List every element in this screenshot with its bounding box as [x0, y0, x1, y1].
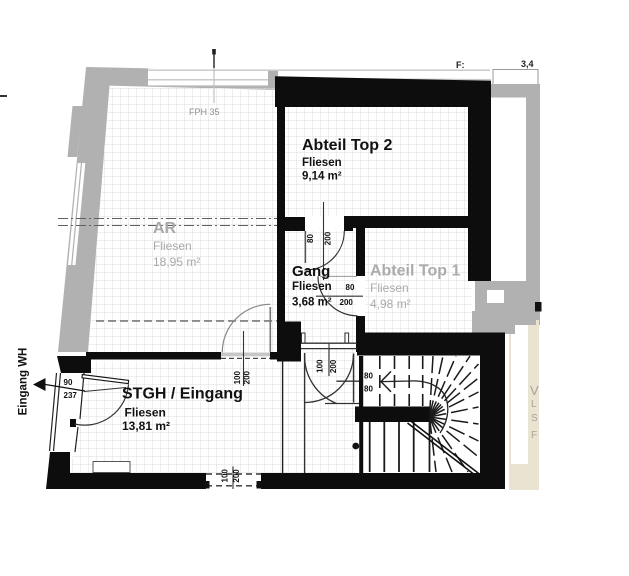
svg-text:18,95 m²: 18,95 m²	[153, 255, 200, 269]
svg-text:STGH / Eingang: STGH / Eingang	[122, 386, 243, 403]
svg-text:200: 200	[340, 298, 354, 307]
svg-text:Fliesen: Fliesen	[292, 281, 332, 293]
svg-text:3,68 m²: 3,68 m²	[292, 297, 332, 309]
svg-text:80: 80	[346, 283, 355, 292]
svg-text:Eingang WH: Eingang WH	[18, 348, 30, 416]
svg-text:Fliesen: Fliesen	[370, 281, 409, 295]
svg-text:200: 200	[329, 359, 338, 373]
svg-text:Fliesen: Fliesen	[302, 157, 342, 169]
svg-text:13,81 m²: 13,81 m²	[122, 419, 170, 433]
svg-text:237: 237	[64, 391, 78, 400]
svg-text:100: 100	[221, 469, 230, 483]
svg-text:V: V	[530, 383, 539, 398]
svg-text:Gang: Gang	[292, 263, 330, 280]
svg-text:F:: F:	[456, 60, 465, 70]
svg-text:Abteil Top 2: Abteil Top 2	[302, 137, 392, 154]
svg-text:Fliesen: Fliesen	[153, 239, 192, 253]
svg-text:L: L	[531, 399, 537, 410]
svg-text:AR: AR	[153, 220, 177, 237]
svg-text:9,14 m²: 9,14 m²	[302, 171, 342, 183]
svg-text:S: S	[531, 413, 538, 424]
svg-text:200: 200	[232, 469, 241, 483]
svg-text:FPH 35: FPH 35	[189, 107, 220, 117]
svg-text:4,98 m²: 4,98 m²	[370, 297, 411, 311]
svg-text:F: F	[531, 430, 537, 441]
svg-text:3,4: 3,4	[521, 59, 534, 69]
svg-text:Abteil Top 1: Abteil Top 1	[370, 263, 460, 280]
svg-text:80: 80	[364, 372, 373, 381]
svg-text:80: 80	[306, 234, 315, 243]
svg-text:Fliesen: Fliesen	[125, 406, 166, 420]
svg-text:100: 100	[233, 370, 242, 384]
svg-text:200: 200	[242, 370, 251, 384]
svg-text:100: 100	[315, 359, 324, 373]
svg-text:200: 200	[324, 231, 333, 245]
svg-text:80: 80	[364, 384, 373, 393]
svg-text:90: 90	[64, 378, 73, 387]
